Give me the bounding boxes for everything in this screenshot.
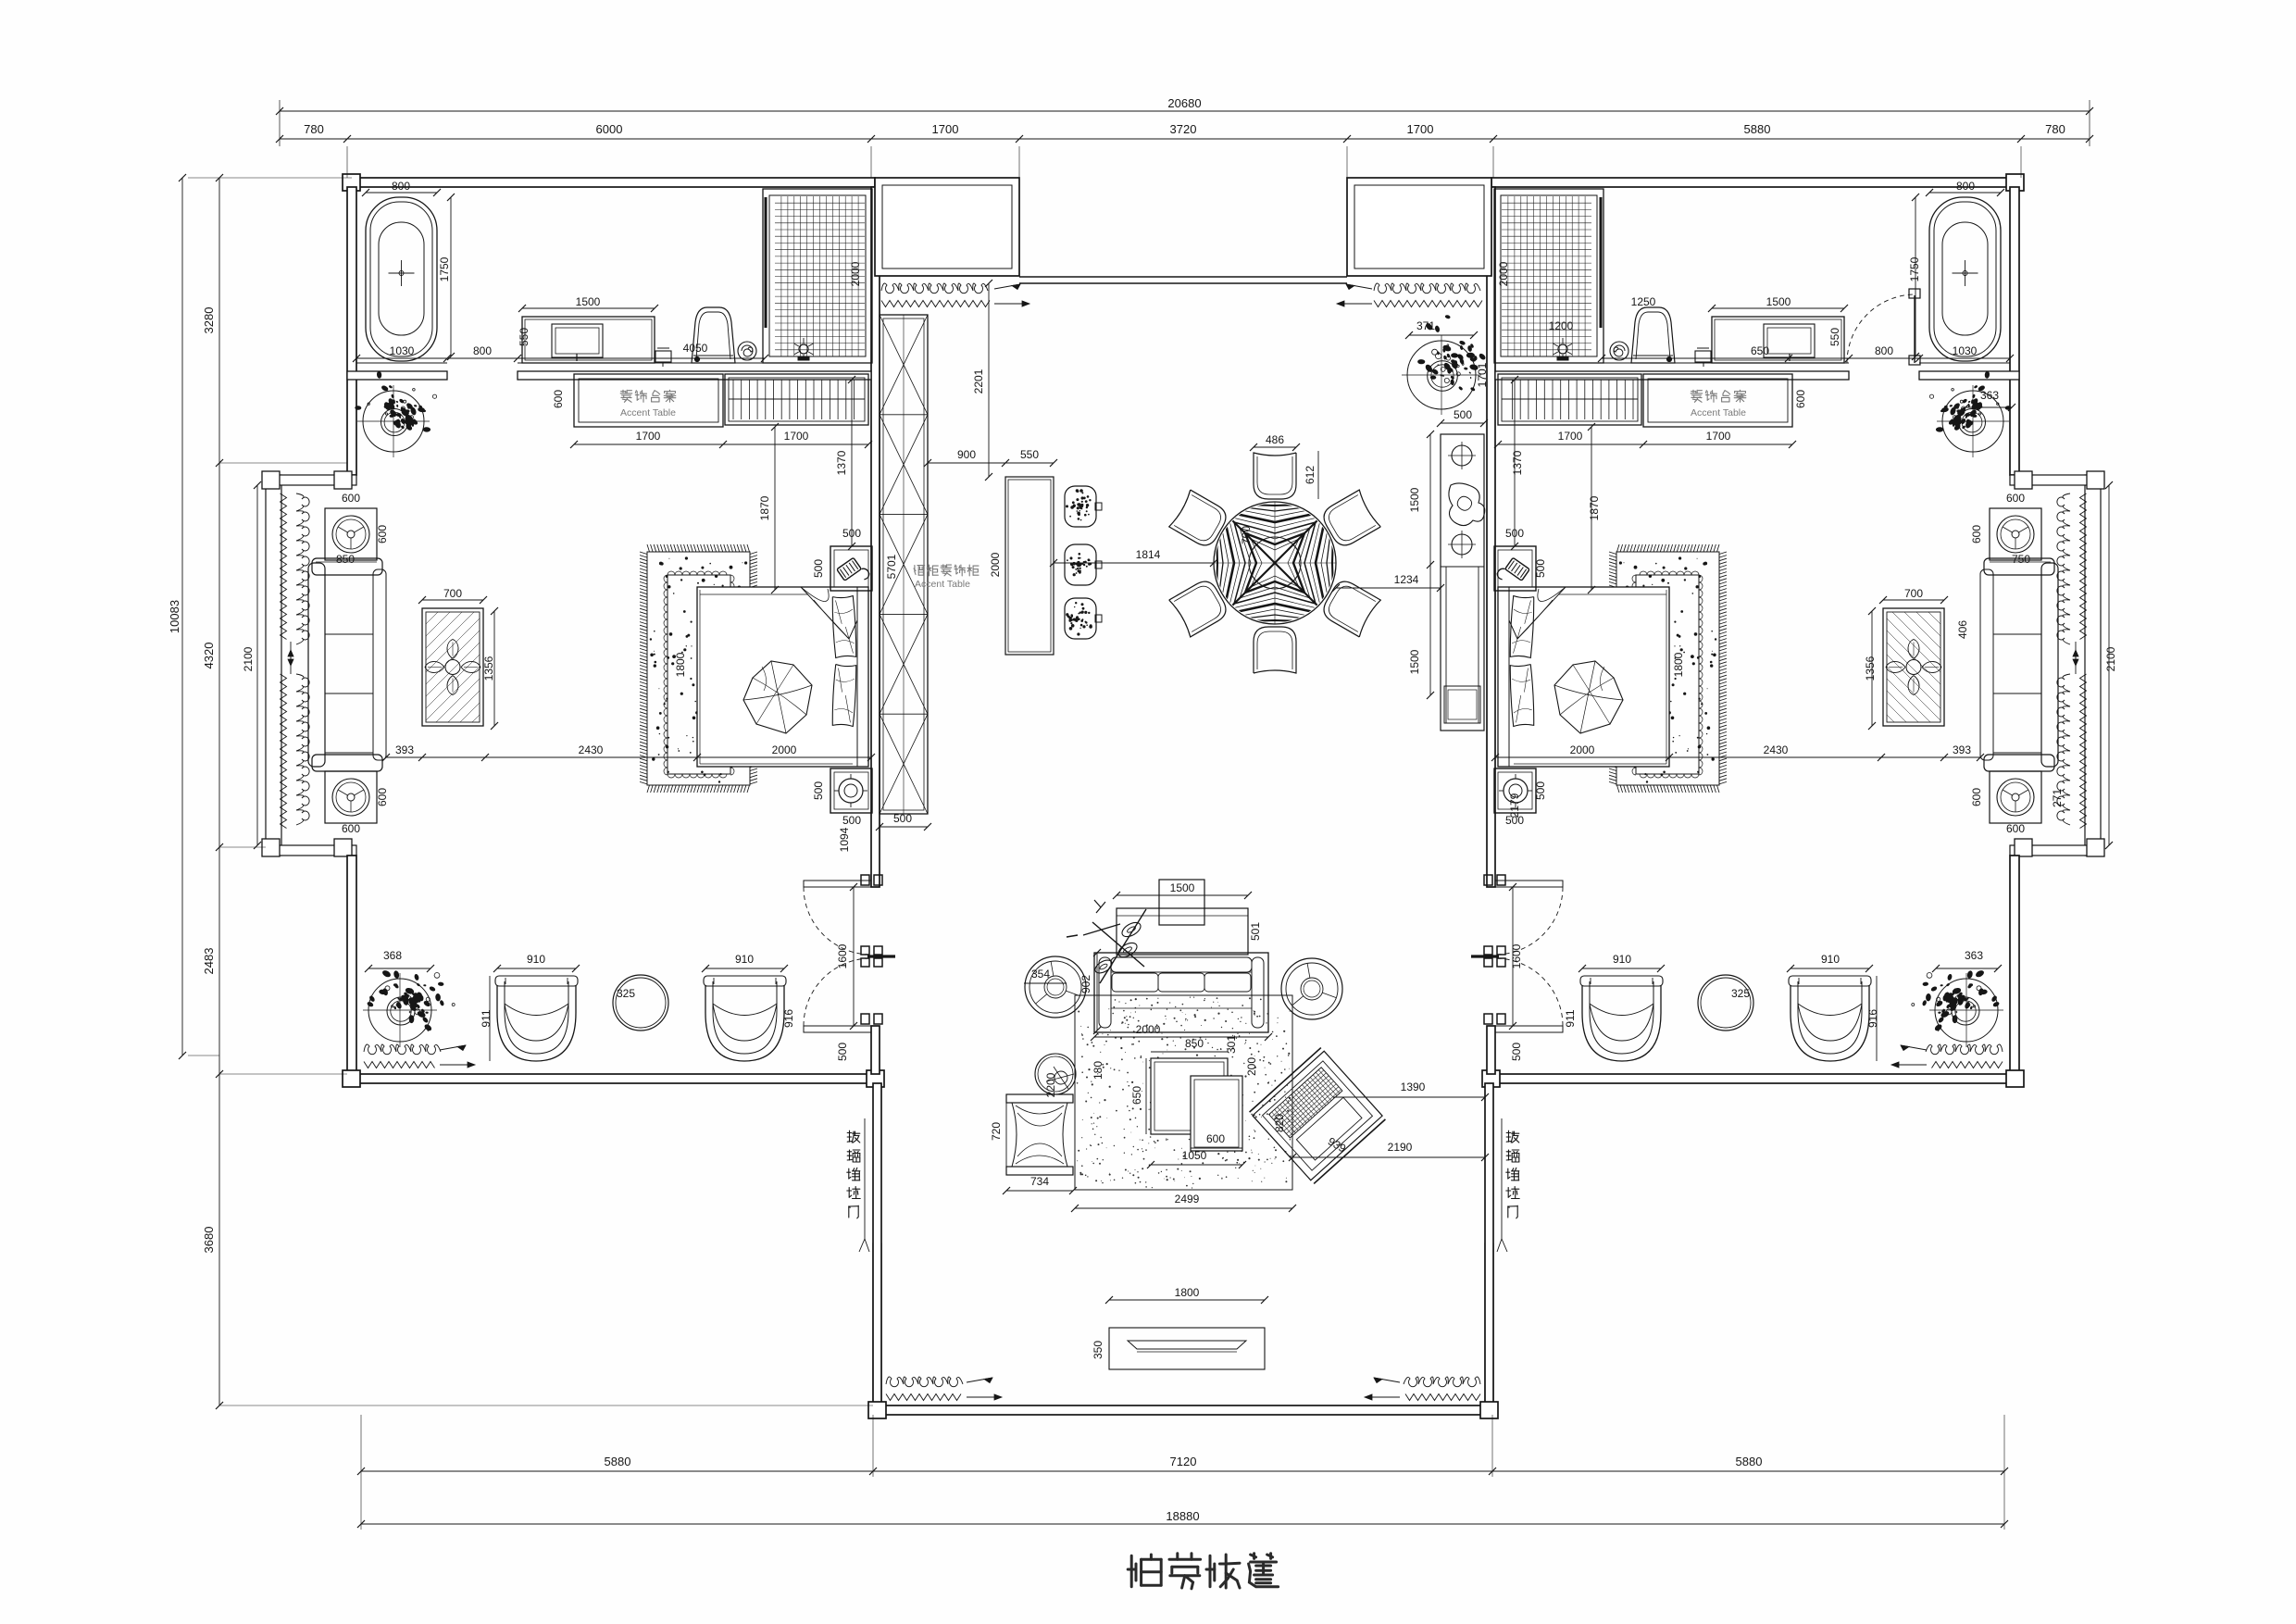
svg-text:2499: 2499 <box>1175 1193 1200 1206</box>
svg-text:1500: 1500 <box>1408 649 1421 674</box>
svg-text:20680: 20680 <box>1167 96 1201 110</box>
svg-text:600: 600 <box>376 788 389 806</box>
svg-text:1814: 1814 <box>1136 548 1161 561</box>
svg-text:750: 750 <box>2012 553 2030 566</box>
svg-text:2200: 2200 <box>1044 1072 1057 1097</box>
svg-text:911: 911 <box>480 1009 493 1027</box>
svg-text:2000: 2000 <box>1497 261 1510 286</box>
svg-text:2000: 2000 <box>1136 1023 1161 1036</box>
svg-text:5701: 5701 <box>885 554 898 579</box>
svg-text:720: 720 <box>990 1122 1003 1141</box>
svg-text:1750: 1750 <box>438 256 451 281</box>
svg-text:600: 600 <box>1970 525 1983 543</box>
svg-text:700: 700 <box>443 587 462 600</box>
svg-text:10083: 10083 <box>168 600 181 633</box>
svg-text:5880: 5880 <box>605 1455 631 1468</box>
svg-text:600: 600 <box>342 492 360 505</box>
svg-text:406: 406 <box>1956 620 1969 639</box>
svg-text:2000: 2000 <box>1570 743 1595 756</box>
svg-text:1370: 1370 <box>1511 450 1524 475</box>
svg-text:2179: 2179 <box>1508 793 1521 818</box>
svg-text:500: 500 <box>1534 781 1547 800</box>
svg-text:325: 325 <box>617 987 635 1000</box>
svg-text:650: 650 <box>1130 1086 1143 1105</box>
svg-text:900: 900 <box>957 448 976 461</box>
svg-text:500: 500 <box>812 781 825 800</box>
svg-text:800: 800 <box>473 344 492 357</box>
svg-text:910: 910 <box>527 953 545 966</box>
svg-text:550: 550 <box>1828 328 1841 346</box>
svg-text:500: 500 <box>1510 1043 1523 1061</box>
svg-text:Accent Table: Accent Table <box>915 579 970 590</box>
svg-text:700: 700 <box>1904 587 1923 600</box>
svg-text:1390: 1390 <box>1401 1081 1426 1093</box>
svg-text:1700: 1700 <box>1407 122 1434 136</box>
svg-text:1500: 1500 <box>1766 295 1791 308</box>
svg-text:1600: 1600 <box>836 943 849 968</box>
svg-text:600: 600 <box>1206 1132 1225 1145</box>
svg-text:2201: 2201 <box>972 369 985 394</box>
svg-text:301: 301 <box>1225 1035 1238 1054</box>
svg-text:368: 368 <box>383 949 402 962</box>
svg-text:500: 500 <box>1534 559 1547 578</box>
svg-text:850: 850 <box>336 553 355 566</box>
svg-text:850: 850 <box>1185 1037 1204 1050</box>
svg-text:Accent Table: Accent Table <box>620 407 676 418</box>
svg-text:1800: 1800 <box>1672 652 1685 677</box>
svg-text:600: 600 <box>1970 788 1983 806</box>
svg-text:1094: 1094 <box>838 827 851 852</box>
svg-text:780: 780 <box>304 122 324 136</box>
svg-text:600: 600 <box>342 822 360 835</box>
svg-text:500: 500 <box>836 1043 849 1061</box>
svg-text:2100: 2100 <box>2104 646 2117 671</box>
svg-text:800: 800 <box>392 180 410 193</box>
svg-text:1700: 1700 <box>784 430 809 443</box>
svg-text:5880: 5880 <box>1736 1455 1763 1468</box>
svg-text:780: 780 <box>2045 122 2065 136</box>
svg-text:820: 820 <box>1273 1114 1286 1132</box>
svg-text:4320: 4320 <box>202 643 216 669</box>
svg-text:1370: 1370 <box>835 450 848 475</box>
svg-text:1870: 1870 <box>1588 495 1601 520</box>
svg-text:1234: 1234 <box>1394 573 1419 586</box>
svg-text:600: 600 <box>376 525 389 543</box>
svg-text:371: 371 <box>1416 319 1435 332</box>
svg-text:600: 600 <box>2006 822 2025 835</box>
svg-text:500: 500 <box>842 527 861 540</box>
svg-text:2000: 2000 <box>849 261 862 286</box>
svg-text:734: 734 <box>1030 1175 1049 1188</box>
svg-text:486: 486 <box>1266 433 1284 446</box>
svg-text:800: 800 <box>1956 180 1975 193</box>
svg-text:650: 650 <box>1751 344 1769 357</box>
svg-text:910: 910 <box>1613 953 1631 966</box>
svg-text:500: 500 <box>1505 527 1524 540</box>
svg-text:180: 180 <box>1092 1061 1104 1080</box>
svg-text:500: 500 <box>893 812 912 825</box>
svg-text:500: 500 <box>1454 408 1472 421</box>
svg-text:7120: 7120 <box>1170 1455 1197 1468</box>
svg-text:1800: 1800 <box>1175 1286 1200 1299</box>
svg-text:3720: 3720 <box>1170 122 1197 136</box>
svg-text:2000: 2000 <box>772 743 797 756</box>
svg-text:500: 500 <box>812 559 825 578</box>
svg-text:1500: 1500 <box>1408 487 1421 512</box>
svg-text:1250: 1250 <box>1631 295 1656 308</box>
svg-text:393: 393 <box>1953 743 1971 756</box>
svg-text:2430: 2430 <box>579 743 604 756</box>
svg-text:1870: 1870 <box>758 495 771 520</box>
svg-text:2000: 2000 <box>989 552 1002 577</box>
svg-text:354: 354 <box>1031 968 1050 981</box>
svg-text:1700: 1700 <box>636 430 661 443</box>
svg-text:550: 550 <box>1020 448 1039 461</box>
svg-text:1030: 1030 <box>1953 344 1978 357</box>
svg-text:501: 501 <box>1249 922 1262 941</box>
svg-text:612: 612 <box>1304 466 1316 484</box>
svg-text:1701: 1701 <box>1476 362 1489 387</box>
svg-text:393: 393 <box>395 743 414 756</box>
svg-text:1050: 1050 <box>1182 1149 1207 1162</box>
svg-text:600: 600 <box>2006 492 2025 505</box>
svg-text:2190: 2190 <box>1388 1141 1413 1154</box>
svg-text:6000: 6000 <box>596 122 623 136</box>
svg-text:1500: 1500 <box>1170 881 1195 894</box>
svg-text:550: 550 <box>518 328 530 346</box>
svg-text:916: 916 <box>1866 1009 1879 1028</box>
svg-text:1030: 1030 <box>390 344 415 357</box>
svg-text:916: 916 <box>782 1009 795 1028</box>
svg-text:200: 200 <box>1245 1057 1258 1076</box>
svg-text:500: 500 <box>842 814 861 827</box>
svg-text:700: 700 <box>1240 526 1253 544</box>
svg-text:5880: 5880 <box>1744 122 1771 136</box>
svg-text:363: 363 <box>1965 949 1983 962</box>
svg-text:600: 600 <box>1794 390 1807 408</box>
svg-text:1700: 1700 <box>1558 430 1583 443</box>
svg-text:1200: 1200 <box>1549 319 1574 332</box>
svg-text:1800: 1800 <box>674 652 687 677</box>
svg-text:2430: 2430 <box>1764 743 1789 756</box>
svg-text:4050: 4050 <box>683 342 708 355</box>
svg-text:910: 910 <box>1821 953 1840 966</box>
svg-text:1600: 1600 <box>1510 943 1523 968</box>
svg-text:363: 363 <box>1980 389 1999 402</box>
svg-text:271: 271 <box>2051 789 2064 807</box>
svg-text:1750: 1750 <box>1908 256 1921 281</box>
svg-text:1356: 1356 <box>482 656 495 681</box>
svg-text:3280: 3280 <box>202 307 216 334</box>
svg-text:2100: 2100 <box>242 646 255 671</box>
svg-text:2483: 2483 <box>202 948 216 975</box>
svg-text:1356: 1356 <box>1864 656 1877 681</box>
svg-text:1500: 1500 <box>576 295 601 308</box>
svg-text:910: 910 <box>735 953 754 966</box>
svg-text:911: 911 <box>1564 1009 1577 1027</box>
svg-text:1700: 1700 <box>1706 430 1731 443</box>
svg-text:600: 600 <box>552 390 565 408</box>
svg-text:325: 325 <box>1731 987 1750 1000</box>
svg-text:18880: 18880 <box>1166 1509 1199 1523</box>
svg-text:902: 902 <box>1079 975 1092 993</box>
svg-text:800: 800 <box>1875 344 1893 357</box>
svg-text:Accent Table: Accent Table <box>1691 407 1746 418</box>
svg-text:350: 350 <box>1092 1341 1104 1359</box>
svg-text:3680: 3680 <box>202 1227 216 1254</box>
svg-text:1700: 1700 <box>932 122 959 136</box>
